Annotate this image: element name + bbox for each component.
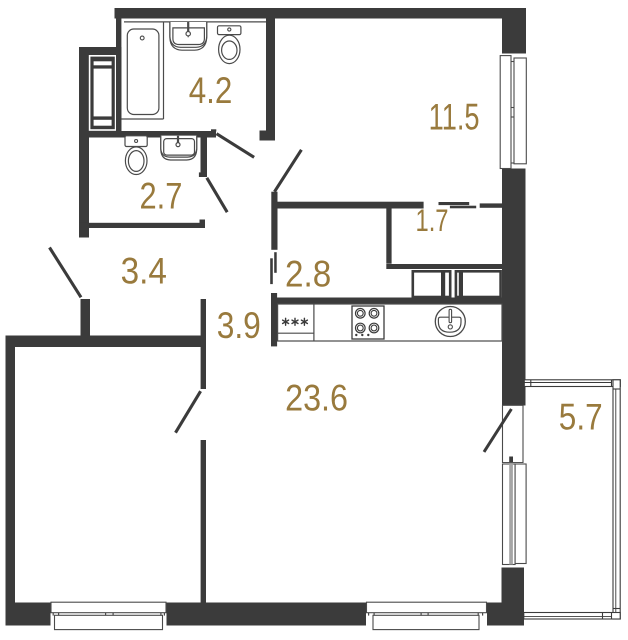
svg-text:11.5: 11.5 bbox=[429, 95, 480, 137]
svg-text:2.7: 2.7 bbox=[140, 175, 183, 217]
svg-text:3.9: 3.9 bbox=[217, 304, 261, 346]
svg-text:5.7: 5.7 bbox=[559, 395, 603, 437]
svg-text:1.7: 1.7 bbox=[416, 203, 449, 238]
svg-text:3.4: 3.4 bbox=[121, 250, 167, 292]
svg-text:4.2: 4.2 bbox=[189, 69, 233, 111]
svg-text:23.6: 23.6 bbox=[285, 377, 348, 419]
svg-text:2.8: 2.8 bbox=[285, 253, 331, 295]
